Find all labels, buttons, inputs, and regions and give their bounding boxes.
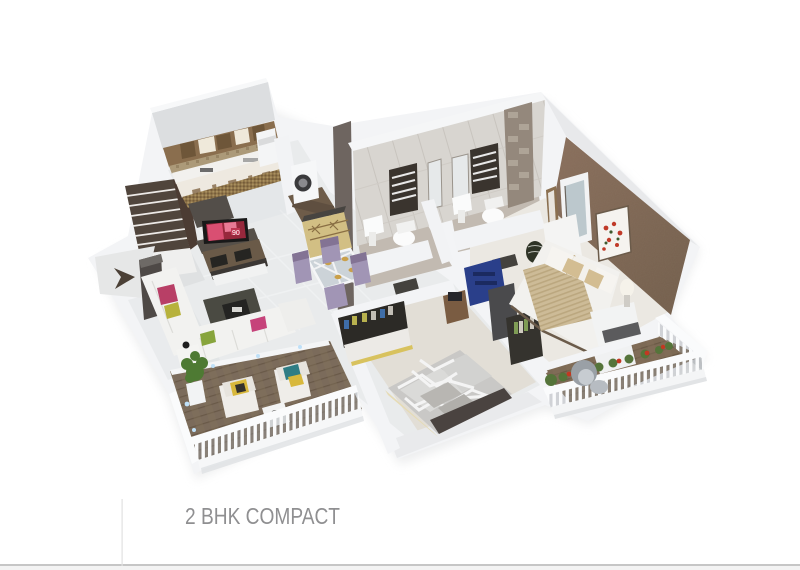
svg-text:90: 90 <box>232 230 240 237</box>
svg-text:2 BHK COMPACT: 2 BHK COMPACT <box>185 503 340 529</box>
